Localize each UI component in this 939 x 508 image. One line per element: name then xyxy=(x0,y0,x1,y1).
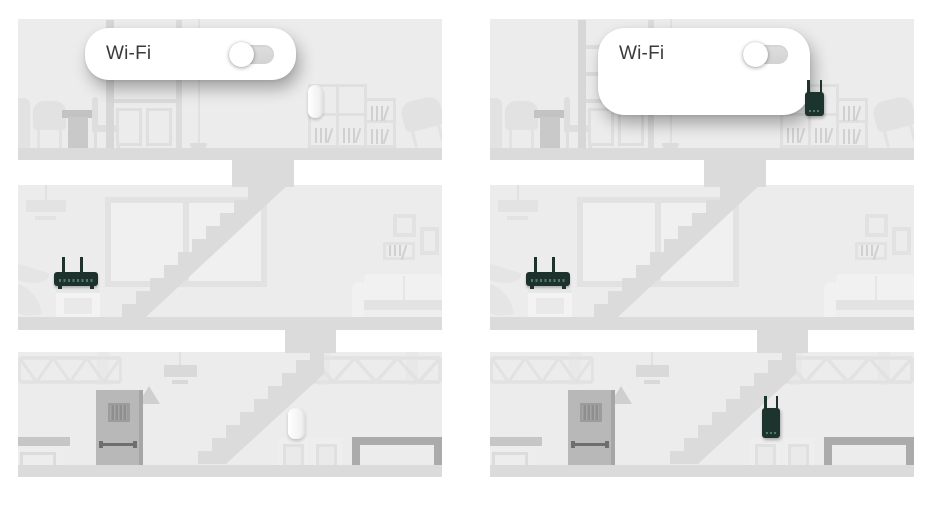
ceiling-truss xyxy=(782,355,914,385)
sideboard xyxy=(18,437,66,477)
staircase-basement xyxy=(196,352,324,464)
toggle-knob-icon xyxy=(743,42,768,67)
ceiling-truss xyxy=(310,355,442,385)
lounge-chair xyxy=(399,95,442,134)
wifi-extender-basement-active-icon xyxy=(762,408,780,438)
picture-frame xyxy=(393,214,416,237)
sideboard xyxy=(490,437,538,477)
wifi-card-row: Wi-Fi xyxy=(85,28,296,80)
door-vent xyxy=(108,403,130,422)
cabinet-door xyxy=(116,108,142,146)
pendant-lamp xyxy=(164,365,197,377)
wifi-toggle[interactable] xyxy=(746,45,788,64)
router-stand xyxy=(528,289,572,317)
cabinet-door xyxy=(588,108,614,146)
wifi-toggle[interactable] xyxy=(232,45,274,64)
half-wall-column xyxy=(68,117,88,148)
door-pushbar xyxy=(100,443,136,446)
stair-opening xyxy=(285,317,336,353)
door-pushbar xyxy=(572,443,608,446)
fire-door xyxy=(568,390,615,477)
sofa xyxy=(824,274,914,317)
floorplan-right: Wi-Fi xyxy=(490,19,914,477)
staircase-upper xyxy=(118,157,290,317)
router-stand xyxy=(56,289,100,317)
pendant-lamp-base xyxy=(172,380,188,384)
pendant-lamp-bar xyxy=(507,216,528,220)
wifi-router-icon xyxy=(54,272,98,286)
picture-frame xyxy=(892,227,911,255)
plant xyxy=(18,262,54,317)
stair-opening xyxy=(757,317,808,353)
picture-frame xyxy=(865,214,888,237)
wifi-card-row: Wi-Fi xyxy=(598,28,810,80)
pendant-lamp xyxy=(662,143,679,151)
floorplan-left: Wi-Fi xyxy=(18,19,442,477)
sofa xyxy=(352,274,442,317)
wifi-card: Wi-Fi xyxy=(598,28,810,115)
pendant-cord xyxy=(45,185,47,201)
cabinet-door xyxy=(146,108,172,146)
pendant-lamp xyxy=(636,365,669,377)
pendant-cord xyxy=(179,352,181,366)
wifi-router-icon xyxy=(526,272,570,286)
plant xyxy=(490,262,526,317)
lounge-chair xyxy=(871,95,914,134)
workbench xyxy=(824,437,914,477)
workbench xyxy=(352,437,442,477)
pendant-cord xyxy=(651,352,653,366)
wifi-card: Wi-Fi xyxy=(85,28,296,80)
ceiling-truss xyxy=(18,355,122,385)
staircase-upper xyxy=(590,157,762,317)
pendant-lamp xyxy=(498,200,538,212)
wifi-extender-shelf-active-icon xyxy=(805,92,824,116)
chair xyxy=(490,98,502,148)
toggle-knob-icon xyxy=(229,42,254,67)
pendant-lamp-base xyxy=(644,380,660,384)
pendant-lamp xyxy=(190,143,207,151)
chair xyxy=(18,98,30,148)
illustration-stage: Wi-Fi xyxy=(0,0,939,508)
pendant-lamp xyxy=(26,200,66,212)
fire-door xyxy=(96,390,143,477)
wifi-label: Wi-Fi xyxy=(619,43,664,65)
wifi-label: Wi-Fi xyxy=(106,43,151,65)
wifi-extender-shelf-idle-icon xyxy=(308,85,323,118)
wall-shelf xyxy=(855,242,887,260)
ceiling-truss xyxy=(490,355,594,385)
picture-frame xyxy=(420,227,439,255)
wall-shelf xyxy=(383,242,415,260)
pendant-cord xyxy=(517,185,519,201)
door-vent xyxy=(580,403,602,422)
half-wall-column xyxy=(540,117,560,148)
pendant-lamp-bar xyxy=(35,216,56,220)
